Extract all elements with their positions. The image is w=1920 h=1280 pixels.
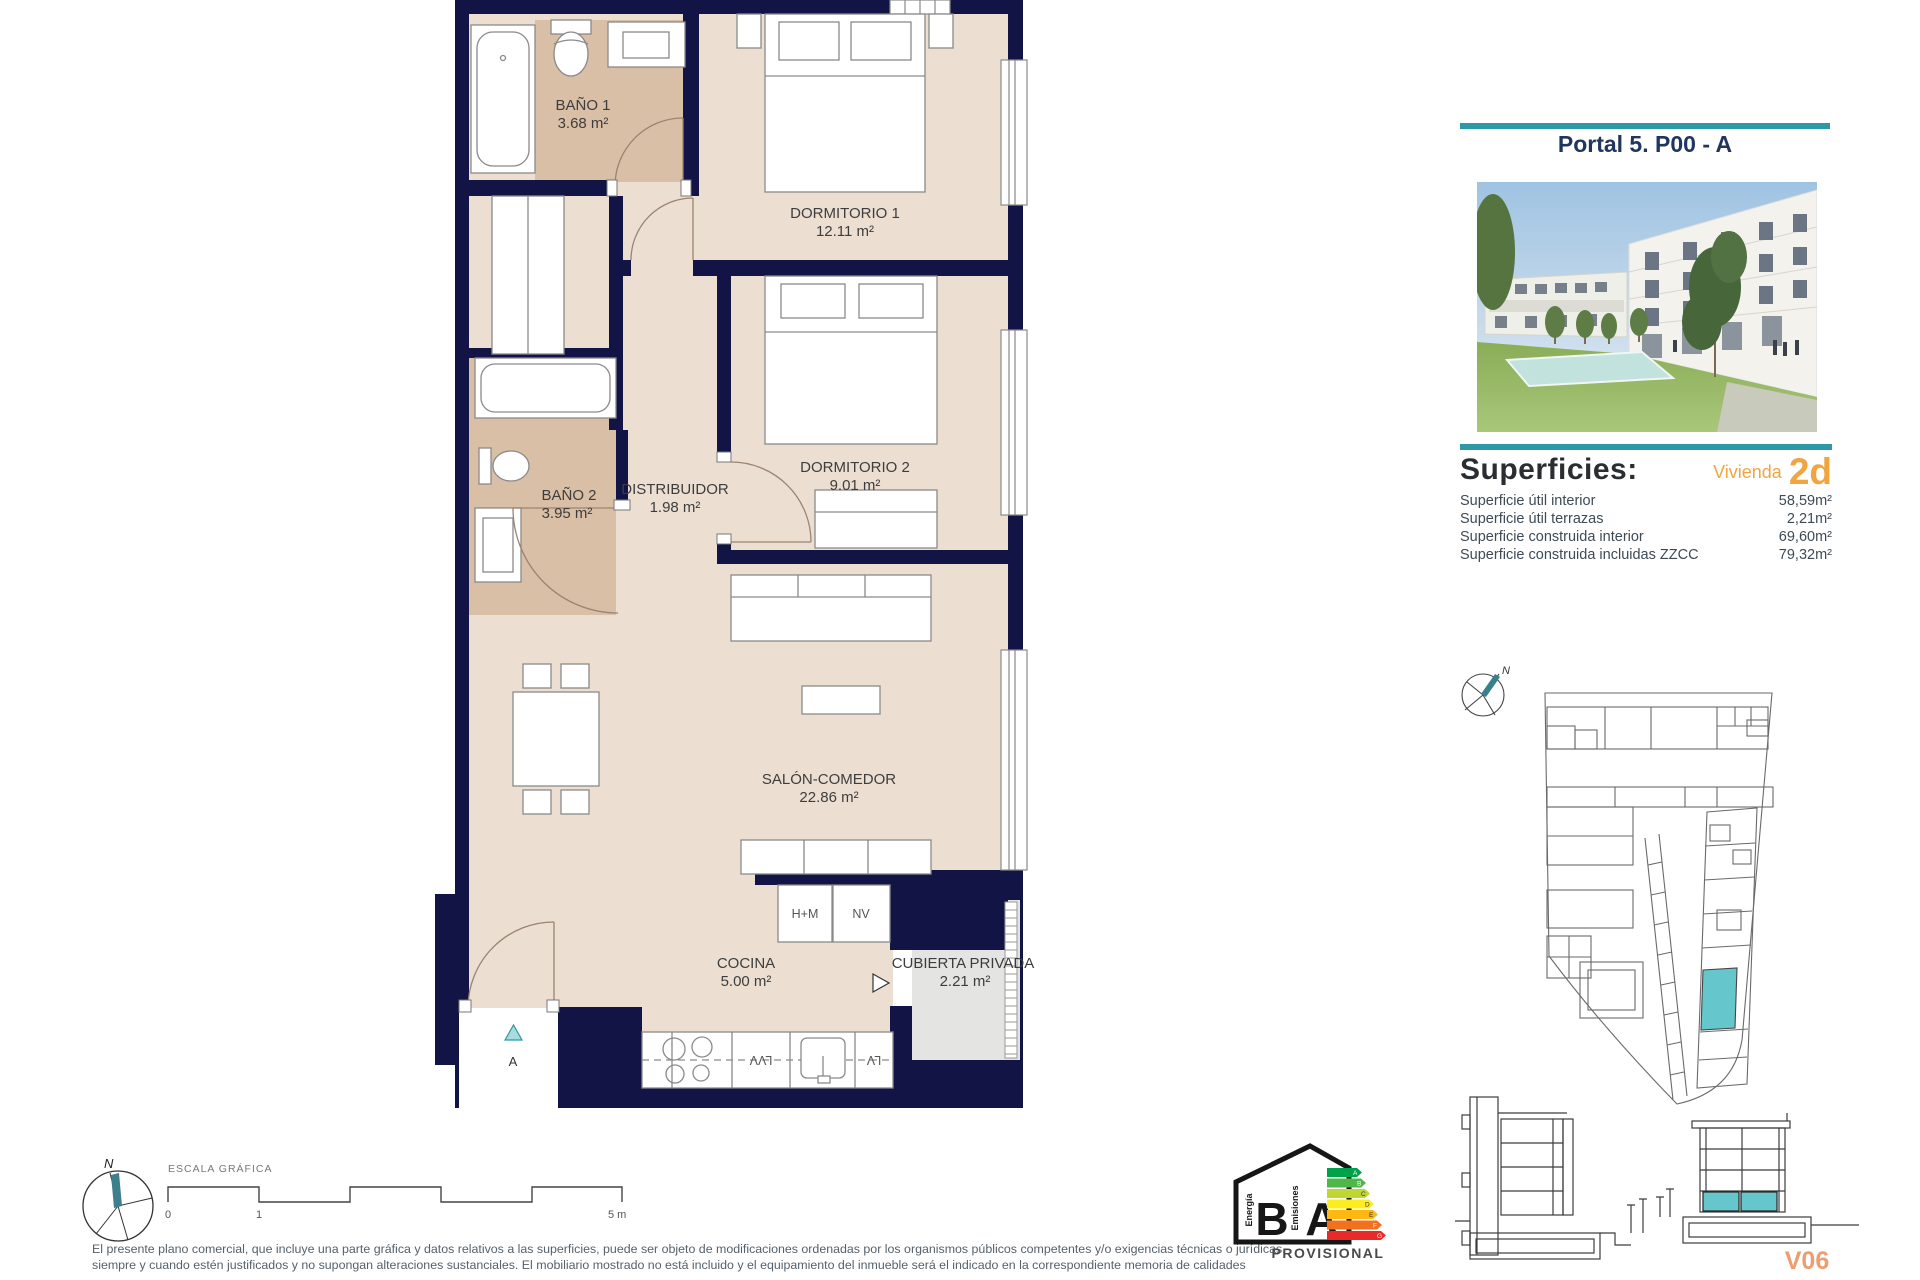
terrace-hatch <box>1005 902 1017 1058</box>
superficies-panel: Superficies: Vivienda 2d Superficie útil… <box>1460 444 1832 564</box>
room-area: 3.68 m² <box>558 115 609 132</box>
provisional-label: PROVISIONAL <box>1248 1245 1408 1261</box>
disclaimer-line: siempre y cuando estén justificados y no… <box>92 1257 1322 1273</box>
dishwasher-label: LVV <box>749 1053 772 1067</box>
scale-bar <box>168 1187 622 1202</box>
vivienda-label: Vivienda <box>1713 462 1782 487</box>
energy-scale-letter: D <box>1365 1202 1370 1209</box>
sideboard <box>741 840 931 874</box>
fridge-label: NV <box>852 907 870 921</box>
room-area: 1.98 m² <box>650 499 701 516</box>
surface-label: Superficie útil interior <box>1460 492 1595 510</box>
site-buildings-west <box>1547 807 1633 978</box>
disclaimer: El presente plano comercial, que incluye… <box>92 1241 1322 1273</box>
surface-label: Superficie construida interior <box>1460 528 1644 546</box>
site-compass-label: N <box>1502 665 1510 677</box>
room-label: DORMITORIO 2 <box>800 459 910 476</box>
room-label: COCINA <box>717 955 775 972</box>
energy-scale-letter: F <box>1373 1223 1377 1230</box>
room-label: BAÑO 2 <box>541 487 596 504</box>
graphic-scale: ESCALA GRÁFICA 0 1 5 m <box>160 1160 640 1222</box>
surface-label: Superficie construida incluidas ZZCC <box>1460 546 1699 564</box>
bed-dormitorio-2 <box>765 276 937 444</box>
closet <box>492 196 564 354</box>
vivienda-code: 2d <box>1789 456 1832 487</box>
site-building-north <box>1547 707 1768 749</box>
bed-dormitorio-1 <box>737 14 953 192</box>
portal-title: Portal 5. P00 - A <box>1460 131 1830 158</box>
site-compass <box>1462 674 1504 716</box>
superficies-accent-line <box>1460 444 1832 450</box>
toilet-1 <box>551 20 591 76</box>
compass-label: N <box>104 1158 114 1171</box>
energy-scale-letter: E <box>1369 1212 1374 1219</box>
coffee-table <box>802 686 880 714</box>
surface-row: Superficie útil interior 58,59m² <box>1460 492 1832 510</box>
bathtub-1 <box>471 25 535 173</box>
site-boundary <box>1545 693 1772 1104</box>
compass-icon: N <box>78 1158 162 1248</box>
surface-row: Superficie útil terrazas 2,21m² <box>1460 510 1832 528</box>
emissions-word: Emisiones <box>1290 1185 1300 1230</box>
bathtub-2 <box>475 358 616 418</box>
site-pool <box>1580 962 1643 1018</box>
energy-arrow-scale: A B C D E F G <box>1327 1168 1386 1240</box>
room-label: DISTRIBUIDOR <box>621 481 729 498</box>
disclaimer-line: El presente plano comercial, que incluye… <box>92 1241 1322 1257</box>
room-label: SALÓN-COMEDOR <box>762 771 896 788</box>
energy-scale-letter: C <box>1361 1191 1366 1198</box>
sink-1 <box>608 22 685 67</box>
room-area: 3.95 m² <box>542 505 593 522</box>
surface-table: Superficie útil interior 58,59m² Superfi… <box>1460 492 1832 564</box>
room-area: 12.11 m² <box>816 223 874 240</box>
surface-value: 2,21m² <box>1787 510 1832 528</box>
surface-value: 58,59m² <box>1779 492 1832 510</box>
energy-scale-letter: A <box>1353 1170 1358 1177</box>
scale-label: ESCALA GRÁFICA <box>168 1162 272 1175</box>
energy-word: Energía <box>1244 1193 1254 1227</box>
energy-letter-b: B <box>1255 1193 1288 1245</box>
sofa <box>731 575 931 641</box>
section-unit-highlight <box>1703 1192 1739 1211</box>
wardrobe <box>815 490 937 548</box>
room-label: BAÑO 1 <box>555 97 610 114</box>
floor-plan-drawing: BAÑO 1 3.68 m² DORMITORIO 1 12.11 m² DOR… <box>435 0 1055 1110</box>
section-unit-highlight <box>1741 1192 1777 1211</box>
scale-tick: 0 <box>165 1209 171 1221</box>
building-render-image <box>1477 182 1817 432</box>
version-label: V06 <box>1785 1247 1829 1275</box>
washer-label: LV <box>866 1053 881 1067</box>
section-left <box>1455 1097 1647 1259</box>
section-right <box>1656 1113 1859 1243</box>
site-unit-highlight <box>1701 968 1737 1030</box>
energy-rating-logo: Energía B Emisiones A A B C D E F G <box>1222 1140 1412 1262</box>
plan-sheet: BAÑO 1 3.68 m² DORMITORIO 1 12.11 m² DOR… <box>0 0 1920 1280</box>
oven-micro-label: H+M <box>792 907 819 921</box>
title-accent-line <box>1460 123 1830 129</box>
surface-label: Superficie útil terrazas <box>1460 510 1603 528</box>
scale-tick: 1 <box>256 1209 262 1221</box>
room-label: CUBIERTA PRIVADA <box>892 955 1035 972</box>
room-area: 9.01 m² <box>830 477 881 494</box>
surface-row: Superficie construida interior 69,60m² <box>1460 528 1832 546</box>
site-walkway <box>1645 834 1687 1100</box>
surface-value: 69,60m² <box>1779 528 1832 546</box>
superficies-heading: Superficies: <box>1460 453 1638 487</box>
surface-row: Superficie construida incluidas ZZCC 79,… <box>1460 546 1832 564</box>
site-building-east <box>1697 720 1768 1088</box>
scale-tick: 5 m <box>608 1209 626 1221</box>
room-label: DORMITORIO 1 <box>790 205 900 222</box>
toilet-2 <box>479 448 529 484</box>
site-plan: N <box>1455 660 1875 1110</box>
surface-value: 79,32m² <box>1779 546 1832 564</box>
building-sections: V06 <box>1455 1085 1875 1280</box>
entrance-label: A <box>509 1054 518 1069</box>
room-area: 22.86 m² <box>799 789 858 806</box>
room-area: 2.21 m² <box>940 973 991 990</box>
room-area: 5.00 m² <box>721 973 772 990</box>
energy-scale-letter: B <box>1357 1181 1361 1188</box>
energy-scale-letter: G <box>1377 1233 1382 1240</box>
